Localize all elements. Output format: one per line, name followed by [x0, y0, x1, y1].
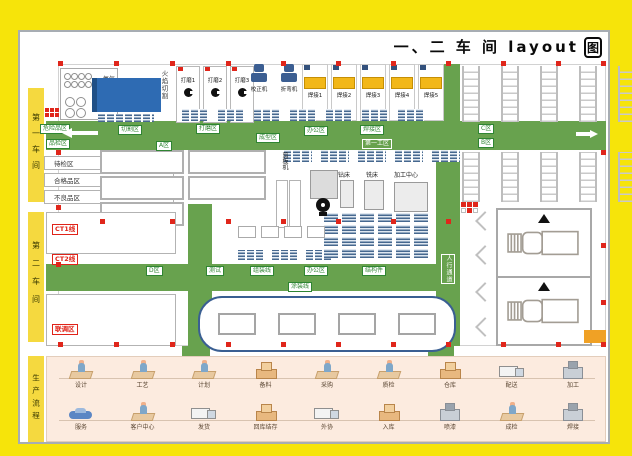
bench-row	[238, 226, 325, 238]
flow-step: 配送	[486, 361, 538, 389]
dock-items	[461, 202, 478, 213]
truck-icon	[506, 298, 580, 324]
flow-step-icon	[130, 361, 156, 379]
column-marker	[281, 219, 286, 224]
flow-step-label: 客户中心	[130, 422, 154, 431]
flow-step: 工艺	[117, 361, 169, 389]
column-marker	[226, 219, 231, 224]
forming-machine: 折弯机	[276, 64, 302, 93]
column-marker	[100, 219, 105, 224]
up-arrow-icon	[538, 282, 550, 291]
flow-title-label: 生产流程	[31, 374, 42, 424]
flow-step-label: 外协	[321, 422, 333, 431]
column-marker	[556, 342, 561, 347]
rack-row-upper	[462, 66, 632, 122]
flow-step: 采购	[301, 361, 353, 389]
pallet-strip-top	[182, 109, 424, 121]
zone-painting-line-label: 涂装线	[288, 282, 312, 292]
column-marker	[170, 342, 175, 347]
flow-step-icon	[130, 403, 156, 421]
up-arrow-icon	[538, 214, 550, 223]
drill-icon	[340, 180, 354, 208]
line-ct1-label: CT1线	[52, 224, 78, 235]
oxygen-bottles	[64, 73, 91, 88]
flow-step: 备料	[240, 361, 292, 389]
machining-center-icon	[394, 182, 428, 212]
zone-forming-label: 成型区	[256, 133, 280, 143]
shearing-machine-label: 剪板机	[280, 152, 289, 170]
column-marker	[446, 61, 451, 66]
flow-step-icon	[253, 361, 279, 379]
zone-work-area1-label: 第一工区	[362, 139, 392, 149]
production-flow-strip: 设计 工艺 计划 备料 采购 质检 仓库 配送	[46, 356, 606, 442]
flow-step-label: 配送	[505, 380, 517, 389]
column-marker	[391, 342, 396, 347]
flow-step: 服务	[55, 403, 107, 431]
column-marker	[226, 61, 231, 66]
flow-step-icon	[376, 403, 402, 421]
column-marker	[601, 342, 606, 347]
welding-bench-icon	[333, 77, 355, 89]
flow-step-icon	[68, 403, 94, 421]
flow-step: 计划	[178, 361, 230, 389]
grinder-icon	[184, 88, 193, 97]
truck-icon	[506, 230, 580, 256]
flow-step-icon	[376, 361, 402, 379]
press-machine-icon	[280, 64, 298, 84]
flow-step-icon	[68, 361, 94, 379]
flow-step-label: 采购	[321, 380, 333, 389]
column-marker	[336, 219, 341, 224]
flow-step-icon	[314, 361, 340, 379]
column-marker	[226, 342, 231, 347]
flow-row-2: 服务 客户中心 发货 回库结存 外协 入库 喷漆 成检	[55, 403, 599, 431]
column-marker	[601, 150, 606, 155]
forming-machines: 校正机 折弯机	[246, 64, 302, 93]
column-marker	[56, 205, 61, 210]
flow-step-label: 回库结存	[253, 422, 277, 431]
page-title-text: 一、二 车 间 layout	[394, 38, 579, 56]
flow-step-label: 服务	[75, 422, 87, 431]
zone-cutting-label: 切割区	[118, 125, 142, 135]
flow-step: 回库结存	[240, 403, 292, 431]
welding-post-icon	[304, 65, 310, 70]
page-title: 一、二 车 间 layout图	[394, 36, 602, 58]
flow-step-icon	[191, 361, 217, 379]
flow-step: 入库	[363, 403, 415, 431]
column-marker	[58, 61, 63, 66]
column-marker	[56, 150, 61, 155]
flow-step-label: 工艺	[136, 380, 148, 389]
page-title-boxed-char: 图	[584, 37, 602, 58]
zone-walkway-label: 人行通道	[441, 254, 455, 284]
flow-arrow-down-icon	[443, 308, 453, 328]
column-marker	[501, 342, 506, 347]
zone-grinding-label: 打磨区	[196, 124, 220, 134]
column-marker	[501, 61, 506, 66]
flow-step-icon	[191, 403, 217, 421]
zone-a-label: A区	[156, 141, 172, 151]
flow-step-label: 计划	[198, 380, 210, 389]
saw-base-icon	[319, 212, 327, 216]
workshop1-label: 第一车间	[31, 113, 42, 177]
flow-step-label: 质检	[382, 380, 394, 389]
zone-test-label: 测试	[206, 266, 224, 276]
welding-bench-icon	[420, 77, 442, 89]
flow-step-icon	[499, 403, 525, 421]
drill-label: 钻床	[338, 170, 350, 179]
column-marker	[281, 61, 286, 66]
flow-step-label: 成检	[505, 422, 517, 431]
column-marker	[56, 262, 61, 267]
zone-c-label: C区	[478, 124, 494, 134]
milling-icon	[364, 180, 384, 210]
flow-step: 发货	[178, 403, 230, 431]
press-machine-icon	[250, 64, 268, 84]
flow-step: 仓库	[424, 361, 476, 389]
milling-label: 铣床	[366, 170, 378, 179]
commissioning-bay	[46, 294, 176, 346]
zone-b-label: B区	[478, 138, 494, 148]
welding-bench-icon	[362, 77, 384, 89]
machining-center-label: 加工中心	[394, 170, 418, 179]
shearing-bench-2	[289, 180, 301, 228]
column-marker	[170, 61, 175, 66]
column-marker	[391, 219, 396, 224]
pallets-under-table	[98, 114, 154, 122]
rack-row-lower	[462, 152, 632, 202]
flow-arrow-right-icon	[576, 130, 598, 138]
flow-step-label: 喷漆	[444, 422, 456, 431]
pallet-strip-low	[238, 250, 332, 260]
column-marker	[391, 61, 396, 66]
zone-d-label: D区	[146, 266, 163, 276]
flow-step-label: 入库	[382, 422, 394, 431]
welding-post-icon	[362, 65, 368, 70]
flow-step-label: 焊接	[567, 422, 579, 431]
column-marker	[446, 342, 451, 347]
loading-dock	[496, 208, 592, 346]
zone-inspection-label: 品检区	[46, 139, 70, 149]
flow-step-icon	[314, 403, 340, 421]
flow-arrow-left-icon	[62, 128, 98, 138]
column-marker	[601, 300, 606, 305]
column-marker	[281, 342, 286, 347]
zone-structural-parts-label: 结构件	[362, 266, 386, 276]
flow-step: 设计	[55, 361, 107, 389]
saw-icon	[316, 198, 330, 212]
acetylene-bottles	[65, 97, 86, 118]
flow-step: 焊接	[547, 403, 599, 431]
flow-row-1: 设计 工艺 计划 备料 采购 质检 仓库 配送	[55, 361, 599, 389]
column-marker	[336, 342, 341, 347]
zone-office1-label: 办公区	[304, 126, 328, 136]
shelving-a-right	[188, 150, 266, 200]
column-marker	[170, 219, 175, 224]
dock-bay-2	[498, 276, 590, 342]
flame-cutting-table	[92, 78, 161, 112]
column-marker	[58, 342, 63, 347]
workshop2-label: 第二车间	[31, 241, 42, 313]
forming-machine: 校正机	[246, 64, 272, 93]
flow-step-label: 加工	[567, 380, 579, 389]
zone-assembly-line-label: 组装线	[250, 266, 274, 276]
flow-title-bar: 生产流程	[28, 356, 44, 442]
welding-post-icon	[420, 65, 426, 70]
column-marker	[114, 342, 119, 347]
flow-step-icon	[437, 403, 463, 421]
workshop2-bar: 第二车间	[28, 212, 44, 342]
flow-step-icon	[560, 403, 586, 421]
zone-welding-label: 焊接区	[360, 125, 384, 135]
column-marker	[336, 61, 341, 66]
column-marker	[556, 61, 561, 66]
flow-step-label: 仓库	[444, 380, 456, 389]
flow-step-label: 设计	[75, 380, 87, 389]
flow-step: 质检	[363, 361, 415, 389]
flow-step: 加工	[547, 361, 599, 389]
grinder-icon	[211, 88, 220, 97]
flow-step-icon	[499, 361, 525, 379]
workstation-grid	[324, 210, 432, 258]
column-marker	[114, 61, 119, 66]
flow-step-label: 备料	[259, 380, 271, 389]
flow-step-label: 发货	[198, 422, 210, 431]
flow-step: 成检	[486, 403, 538, 431]
commissioning-label: 联调区	[52, 324, 78, 335]
flow-step: 喷漆	[424, 403, 476, 431]
hazmat-items	[45, 108, 59, 117]
flow-step-icon	[437, 361, 463, 379]
flow-step-icon	[253, 403, 279, 421]
flow-step: 客户中心	[117, 403, 169, 431]
column-marker	[601, 243, 606, 248]
pallet-strip-mid	[284, 150, 460, 162]
column-marker	[601, 61, 606, 66]
dock-bay-1	[498, 210, 590, 274]
conveyor-loop	[198, 296, 456, 352]
welding-bench-icon	[304, 77, 326, 89]
workshop1-bar: 第一车间	[28, 88, 44, 202]
flow-step: 外协	[301, 403, 353, 431]
shearing-machine-icon	[310, 170, 338, 199]
welding-bench-icon	[391, 77, 413, 89]
flow-step-icon	[560, 361, 586, 379]
layout-poster: 一、二 车 间 layout图 第一车间 第二车间 生产流程 氧气 乙炔 火焰切…	[0, 0, 632, 456]
column-marker	[446, 219, 451, 224]
zone-office2-label: 办公区	[304, 266, 328, 276]
